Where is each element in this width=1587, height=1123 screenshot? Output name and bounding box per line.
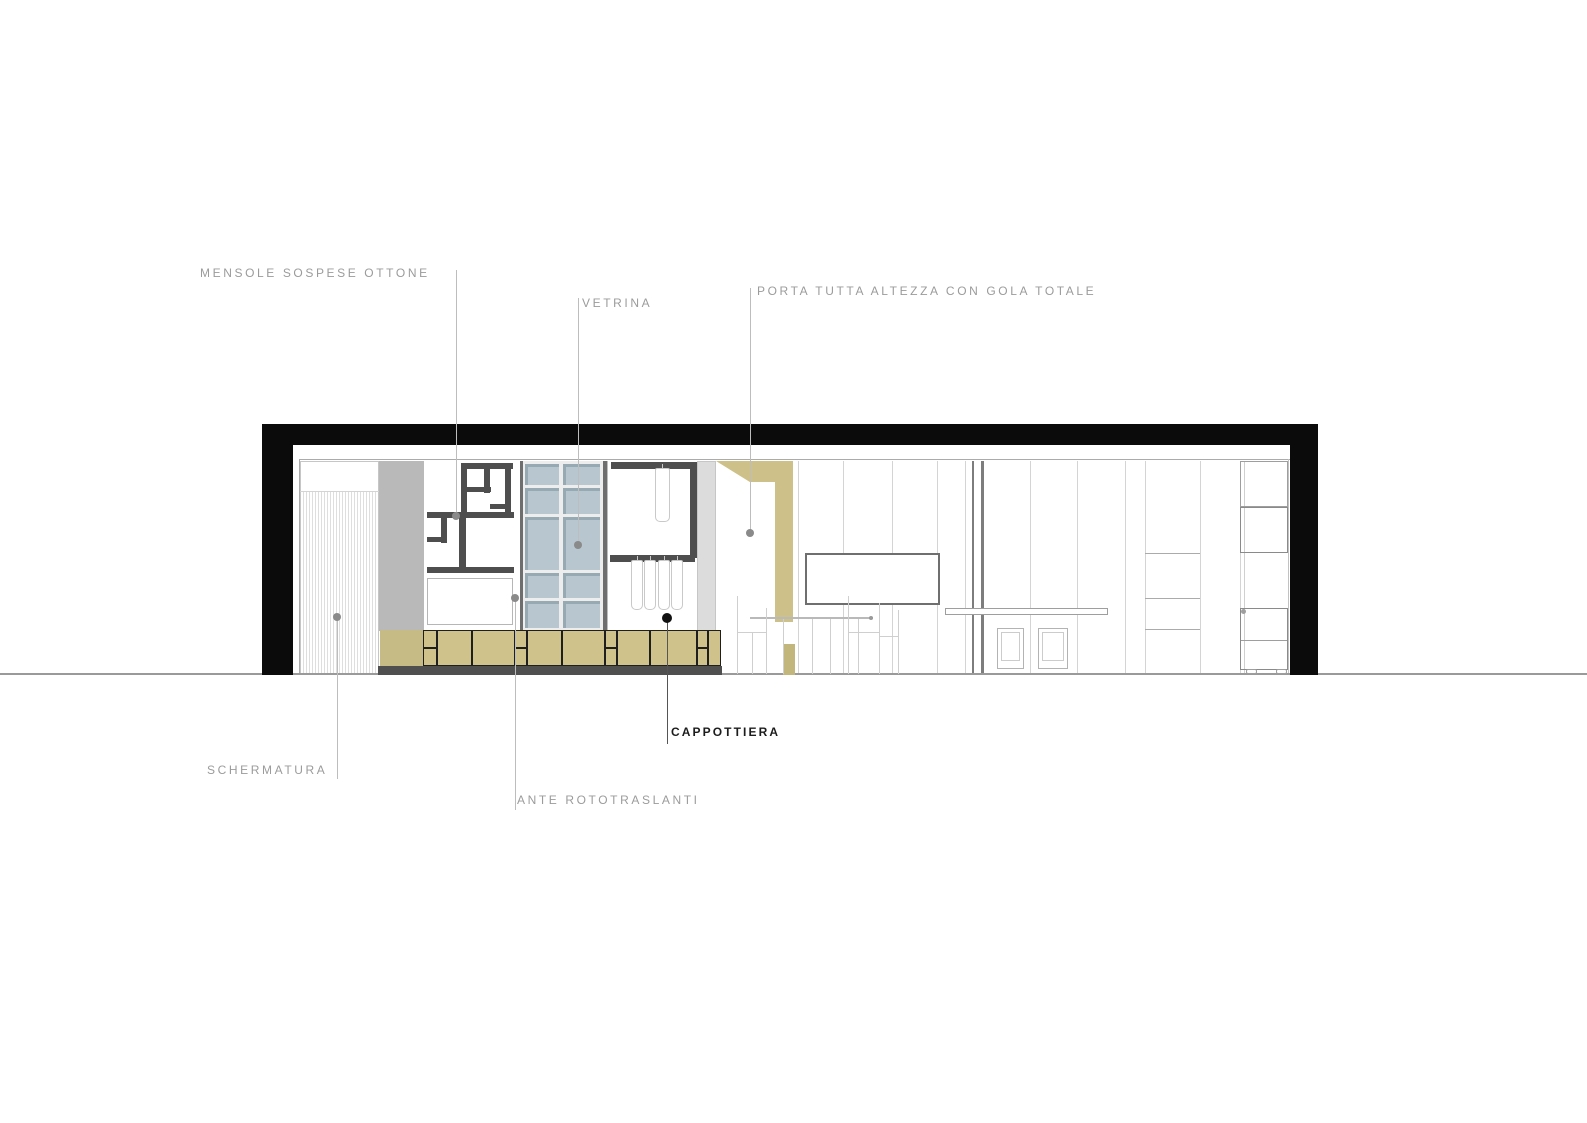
glass-pane bbox=[563, 573, 600, 598]
tall-side-panel bbox=[379, 461, 424, 631]
bookcase-lower-divider bbox=[1241, 640, 1287, 641]
annotation-vetrina: VETRINA bbox=[582, 296, 652, 310]
glass-pane bbox=[563, 488, 600, 514]
glass-pane bbox=[525, 488, 559, 514]
screen-stripe bbox=[339, 492, 340, 675]
closet-divider bbox=[1145, 629, 1200, 630]
screen-stripe bbox=[351, 492, 352, 675]
table-leg bbox=[783, 619, 784, 674]
base-cabinet-module-divider bbox=[515, 647, 527, 649]
screen-stripe bbox=[321, 492, 322, 675]
base-cabinet-module bbox=[617, 630, 650, 666]
chair-back bbox=[737, 596, 738, 674]
base-cabinet-module-divider bbox=[697, 647, 708, 649]
wall-panel-line bbox=[798, 461, 799, 674]
base-cabinet-plain bbox=[380, 630, 423, 666]
garment bbox=[671, 560, 683, 610]
mensole-lower-panel bbox=[427, 578, 513, 625]
base-cabinet-module bbox=[650, 630, 697, 666]
glass-pane bbox=[563, 601, 600, 628]
screen-stripe bbox=[357, 492, 358, 675]
vetrina-edge-right bbox=[603, 461, 607, 631]
leader-line-cappottiera bbox=[667, 618, 668, 744]
shelf-bar bbox=[459, 518, 466, 573]
screen-stripe bbox=[312, 492, 313, 675]
screen-stripe bbox=[375, 492, 376, 675]
leader-line-vetrina bbox=[578, 298, 579, 545]
wall-panel-line bbox=[1200, 461, 1201, 674]
leader-line-porta bbox=[750, 288, 751, 533]
wall-panel-line bbox=[1077, 461, 1078, 674]
bookcase-box-mid bbox=[1240, 507, 1288, 553]
chair-back bbox=[766, 608, 767, 674]
leader-dot-porta bbox=[746, 529, 754, 537]
caster bbox=[1276, 669, 1287, 674]
interior-right-line bbox=[1288, 459, 1289, 675]
chair-seat bbox=[848, 632, 879, 633]
shelf-bar bbox=[427, 567, 514, 573]
leader-line-mensole bbox=[456, 270, 457, 516]
screen-stripe bbox=[348, 492, 349, 675]
partition-line-b bbox=[981, 461, 984, 675]
chair-back bbox=[879, 603, 880, 674]
wall-right bbox=[1290, 424, 1318, 675]
glass-pane bbox=[563, 464, 600, 485]
glass-pane bbox=[525, 573, 559, 598]
screen-stripe bbox=[363, 492, 364, 675]
base-cabinet-module bbox=[708, 630, 721, 666]
elevation-sheet: MENSOLE SOSPESE OTTONE VETRINA PORTA TUT… bbox=[0, 0, 1587, 1123]
wall-panel-line bbox=[1145, 461, 1146, 674]
glass-pane bbox=[525, 601, 559, 628]
leader-line-schermatura bbox=[337, 617, 338, 779]
screen-stripe bbox=[318, 492, 319, 675]
bookcase-box-top bbox=[1240, 461, 1288, 507]
base-cabinet-module-divider bbox=[605, 647, 617, 649]
wall-niche-panel bbox=[805, 553, 940, 605]
chair-back bbox=[848, 596, 849, 674]
leader-dot-schermatura bbox=[333, 613, 341, 621]
closet-divider bbox=[1145, 598, 1200, 599]
screen-stripe bbox=[354, 492, 355, 675]
annotation-ante-rototraslanti: ANTE ROTOTRASLANTI bbox=[517, 793, 700, 807]
annotation-mensole-sospese-ottone: MENSOLE SOSPESE OTTONE bbox=[200, 266, 430, 280]
screen-stripe bbox=[330, 492, 331, 675]
annotation-cappottiera: CAPPOTTIERA bbox=[671, 725, 780, 739]
wardrobe-right-post bbox=[690, 462, 697, 558]
chair-seat bbox=[879, 636, 899, 637]
glass-pane bbox=[525, 517, 559, 570]
screen-stripe bbox=[309, 492, 310, 675]
elevation-drawing bbox=[0, 0, 1587, 1123]
partition-line-a bbox=[972, 461, 974, 675]
chair-leg bbox=[752, 632, 753, 674]
wall-panel-line bbox=[1030, 461, 1031, 674]
ceiling-line bbox=[300, 459, 1290, 460]
table-leg bbox=[812, 619, 813, 674]
base-cabinet-module bbox=[562, 630, 605, 666]
garment bbox=[655, 468, 670, 522]
screen-stripe bbox=[306, 492, 307, 675]
garment bbox=[644, 560, 656, 610]
screen-stripe bbox=[345, 492, 346, 675]
wardrobe-left-line bbox=[607, 461, 608, 631]
wall-top-band bbox=[262, 424, 1318, 445]
wardrobe-side-panel bbox=[697, 461, 716, 631]
leader-dot-ante bbox=[511, 594, 519, 602]
door-jamb-lower bbox=[783, 644, 795, 675]
screen-stripe bbox=[369, 492, 370, 675]
table-leg bbox=[830, 619, 831, 674]
wall-shelf bbox=[945, 608, 1108, 615]
bookcase-lower-cabinet bbox=[1240, 608, 1288, 670]
annotation-schermatura: SCHERMATURA bbox=[207, 763, 327, 777]
screen-stripe bbox=[333, 492, 334, 675]
annotation-porta-tutta-altezza: PORTA TUTTA ALTEZZA CON GOLA TOTALE bbox=[757, 284, 1096, 298]
wall-left bbox=[262, 424, 293, 675]
wardrobe-top-rail bbox=[611, 462, 692, 469]
door-jamb bbox=[775, 482, 793, 622]
leader-dot-cappottiera bbox=[662, 613, 672, 623]
framed-panel-inner bbox=[1042, 632, 1064, 661]
leader-dot-mensole bbox=[452, 512, 460, 520]
garment bbox=[631, 560, 643, 610]
screen-stripe bbox=[327, 492, 328, 675]
table-leg bbox=[858, 619, 859, 674]
framed-panel-inner bbox=[1001, 632, 1020, 661]
closet-divider bbox=[1145, 553, 1200, 554]
vetrina-edge-left bbox=[520, 461, 523, 631]
plinth bbox=[378, 666, 722, 675]
chair-back bbox=[898, 610, 899, 674]
wall-panel-line bbox=[1125, 461, 1126, 674]
screen-top-divider bbox=[300, 491, 379, 492]
table-end-dot bbox=[869, 616, 873, 620]
garment bbox=[658, 560, 670, 610]
base-cabinet-module-divider bbox=[423, 647, 437, 649]
wall-panel-line bbox=[965, 461, 966, 674]
screen-stripe bbox=[315, 492, 316, 675]
screen-stripe bbox=[360, 492, 361, 675]
screen-stripe bbox=[324, 492, 325, 675]
bookcase-hinge-dot bbox=[1241, 609, 1246, 614]
screen-stripe bbox=[372, 492, 373, 675]
screen-stripe bbox=[366, 492, 367, 675]
base-cabinet-module bbox=[527, 630, 562, 666]
shelf-bar bbox=[427, 537, 447, 542]
screen-stripe bbox=[303, 492, 304, 675]
caster bbox=[1246, 669, 1257, 674]
screen-stripe bbox=[342, 492, 343, 675]
base-cabinet-module bbox=[472, 630, 515, 666]
shelf-bar bbox=[467, 487, 491, 492]
shelf-bar bbox=[490, 504, 511, 509]
glass-pane bbox=[525, 464, 559, 485]
leader-dot-vetrina bbox=[574, 541, 582, 549]
base-cabinet-module bbox=[437, 630, 472, 666]
door-head-band bbox=[716, 461, 793, 482]
leader-line-ante bbox=[515, 598, 516, 810]
